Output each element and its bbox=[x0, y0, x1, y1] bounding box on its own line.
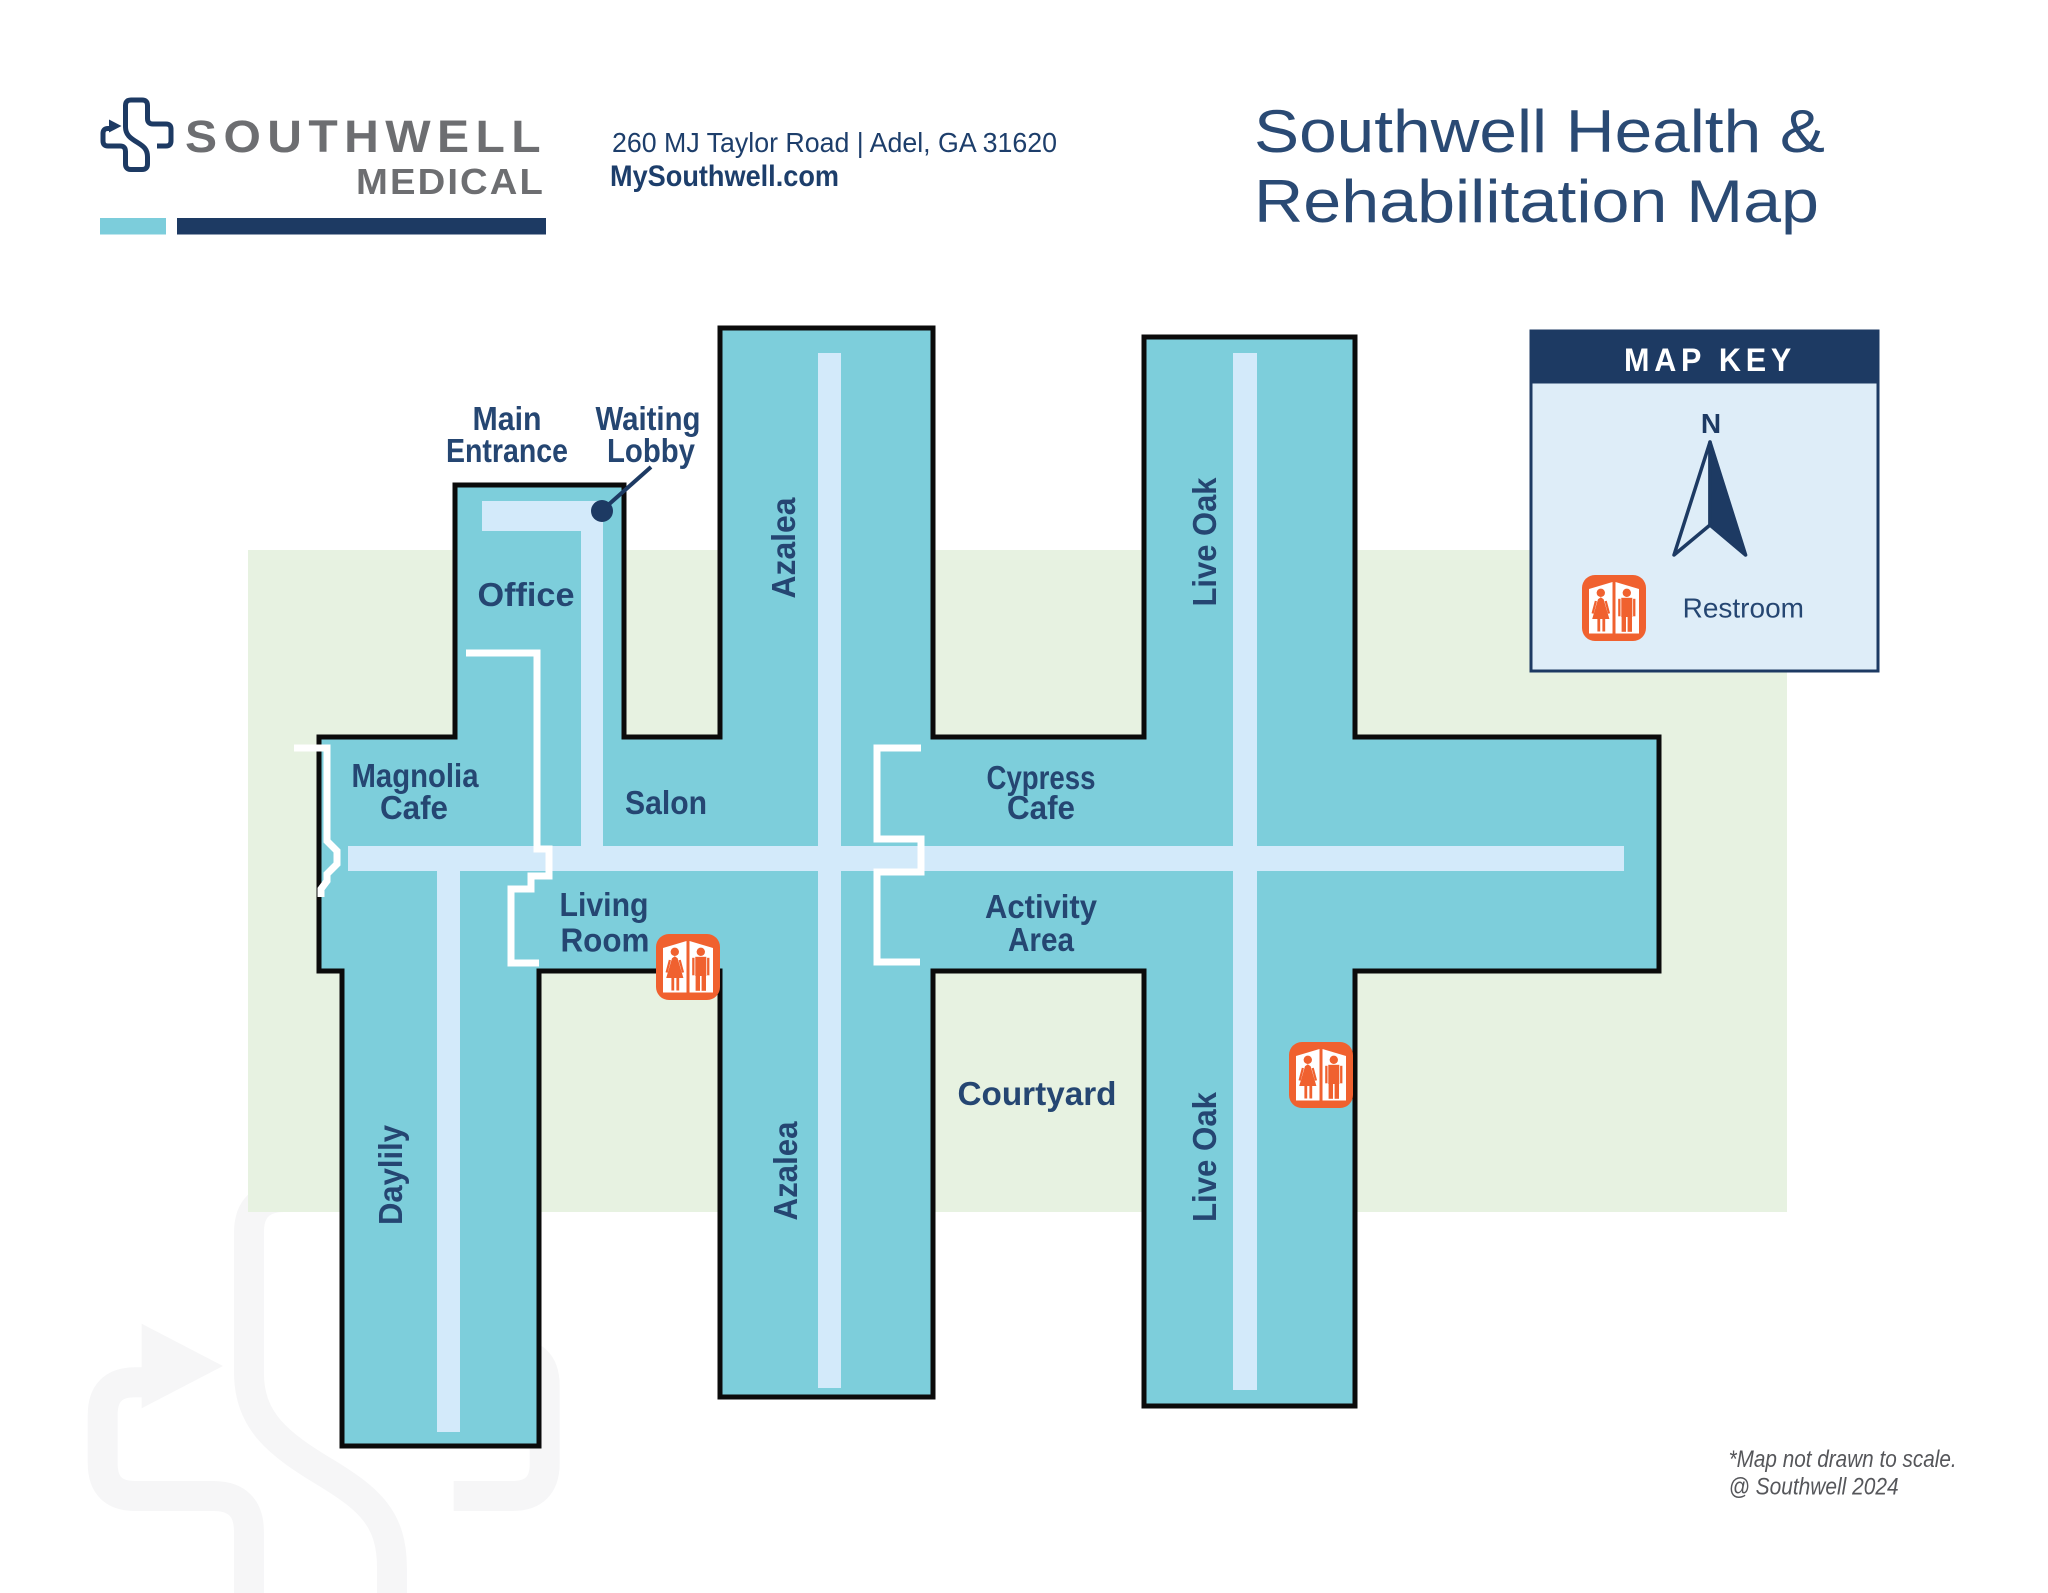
svg-text:Area: Area bbox=[1008, 921, 1075, 958]
svg-text:Azalea: Azalea bbox=[765, 497, 802, 599]
svg-text:Live Oak: Live Oak bbox=[1186, 477, 1223, 607]
svg-text:Activity: Activity bbox=[985, 888, 1098, 925]
svg-text:MySouthwell.com: MySouthwell.com bbox=[610, 160, 839, 193]
svg-text:Southwell Health &: Southwell Health & bbox=[1254, 98, 1825, 165]
svg-text:Courtyard: Courtyard bbox=[958, 1075, 1117, 1112]
svg-text:Cafe: Cafe bbox=[380, 789, 448, 826]
svg-text:@ Southwell 2024: @ Southwell 2024 bbox=[1729, 1474, 1899, 1501]
svg-text:N: N bbox=[1701, 408, 1721, 439]
svg-text:Restroom: Restroom bbox=[1683, 593, 1804, 624]
svg-text:Azalea: Azalea bbox=[767, 1121, 804, 1221]
svg-text:Cafe: Cafe bbox=[1007, 789, 1075, 826]
svg-text:Room: Room bbox=[561, 922, 650, 959]
svg-text:Salon: Salon bbox=[625, 784, 707, 821]
svg-text:SOUTHWELL: SOUTHWELL bbox=[185, 111, 547, 162]
svg-text:MEDICAL: MEDICAL bbox=[356, 161, 545, 202]
svg-text:Office: Office bbox=[478, 576, 575, 613]
svg-text:Living: Living bbox=[560, 886, 649, 923]
svg-text:Entrance: Entrance bbox=[446, 432, 568, 469]
svg-text:Lobby: Lobby bbox=[607, 432, 696, 469]
svg-text:260 MJ Taylor Road | Adel, GA: 260 MJ Taylor Road | Adel, GA 31620 bbox=[612, 127, 1057, 158]
svg-text:*Map not drawn to scale.: *Map not drawn to scale. bbox=[1729, 1446, 1957, 1473]
svg-text:Live Oak: Live Oak bbox=[1186, 1091, 1223, 1222]
svg-text:Daylily: Daylily bbox=[372, 1124, 409, 1225]
svg-text:MAP KEY: MAP KEY bbox=[1624, 342, 1796, 378]
svg-text:Rehabilitation Map: Rehabilitation Map bbox=[1254, 168, 1819, 235]
